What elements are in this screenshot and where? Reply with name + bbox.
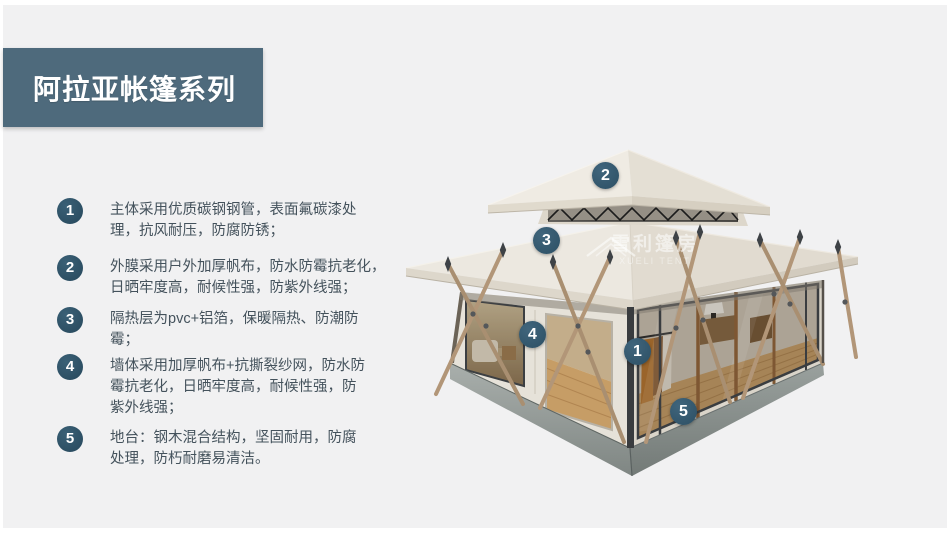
feature-item-3: 3 隔热层为pvc+铝箔，保暖隔热、防潮防 霉；: [57, 307, 397, 351]
upper-roof: [488, 150, 770, 215]
page-title: 阿拉亚帐篷系列: [3, 68, 236, 108]
tent-callout-1: 1: [624, 338, 651, 365]
feature-item-5: 5 地台：钢木混合结构，坚固耐用，防腐 处理，防朽耐磨易清洁。: [57, 426, 397, 470]
title-banner: 阿拉亚帐篷系列: [3, 48, 263, 127]
feature-item-4: 4 墙体采用加厚帆布+抗撕裂纱网，防水防 霉抗老化，日晒牢度高，耐候性强，防 紫…: [57, 354, 397, 419]
feature-text-5: 地台：钢木混合结构，坚固耐用，防腐 处理，防朽耐磨易清洁。: [110, 426, 395, 470]
number-badge-2: 2: [57, 255, 83, 281]
feature-text-1: 主体采用优质碳钢钢管，表面氟碳漆处 理，抗风耐压，防腐防锈；: [110, 198, 395, 242]
slide-page: 阿拉亚帐篷系列 1 主体采用优质碳钢钢管，表面氟碳漆处 理，抗风耐压，防腐防锈；…: [0, 0, 950, 534]
tent-callout-4: 4: [519, 321, 546, 348]
feature-list: 1 主体采用优质碳钢钢管，表面氟碳漆处 理，抗风耐压，防腐防锈； 2 外膜采用户…: [57, 198, 397, 470]
feature-text-4: 墙体采用加厚帆布+抗撕裂纱网，防水防 霉抗老化，日晒牢度高，耐候性强，防 紫外线…: [110, 354, 395, 419]
feature-item-2: 2 外膜采用户外加厚帆布，防水防霉抗老化， 日晒牢度高，耐候性强，防紫外线强；: [57, 255, 397, 299]
tent-illustration: 雪利篷房 XUELI TENT 2 3 4 1 5: [398, 142, 898, 492]
feature-text-2: 外膜采用户外加厚帆布，防水防霉抗老化， 日晒牢度高，耐候性强，防紫外线强；: [110, 255, 395, 299]
number-badge-1: 1: [57, 198, 83, 224]
number-badge-5: 5: [57, 426, 83, 452]
number-badge-3: 3: [57, 307, 83, 333]
tent-callout-2: 2: [592, 162, 619, 189]
feature-item-1: 1 主体采用优质碳钢钢管，表面氟碳漆处 理，抗风耐压，防腐防锈；: [57, 198, 397, 242]
number-badge-4: 4: [57, 354, 83, 380]
tent-rendering: [398, 142, 898, 492]
tent-callout-3: 3: [533, 227, 560, 254]
feature-text-3: 隔热层为pvc+铝箔，保暖隔热、防潮防 霉；: [110, 307, 395, 351]
tent-callout-5: 5: [670, 398, 697, 425]
